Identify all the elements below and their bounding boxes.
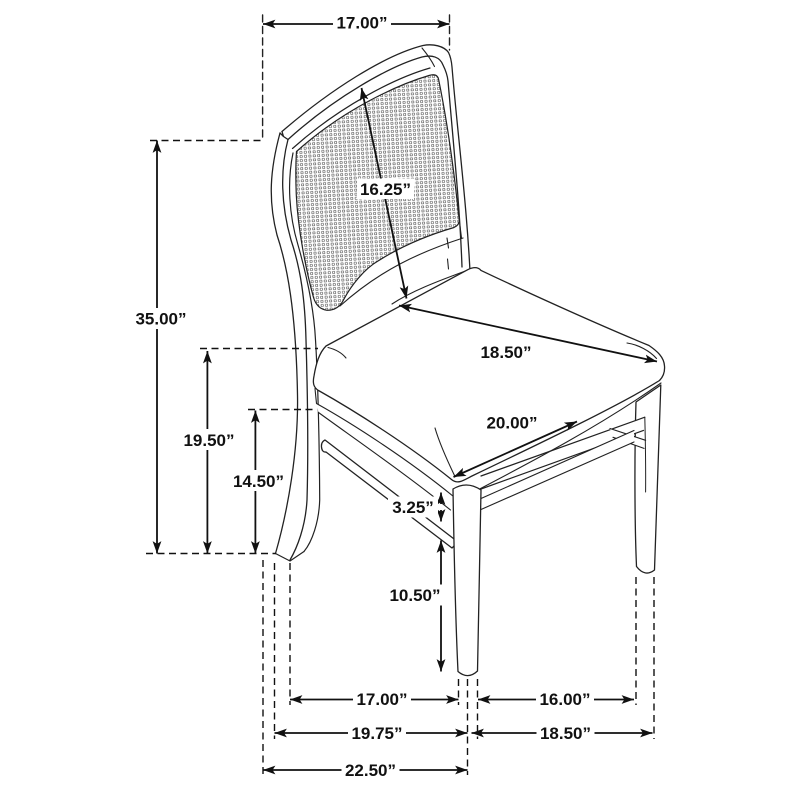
svg-text:18.50”: 18.50”	[540, 724, 591, 743]
svg-text:19.75”: 19.75”	[351, 724, 402, 743]
svg-text:19.50”: 19.50”	[183, 431, 234, 450]
svg-text:14.50”: 14.50”	[233, 472, 284, 491]
svg-text:22.50”: 22.50”	[345, 761, 396, 780]
svg-text:18.50”: 18.50”	[480, 343, 531, 362]
svg-text:17.00”: 17.00”	[356, 690, 407, 709]
svg-text:3.25”: 3.25”	[392, 498, 434, 517]
svg-text:16.25”: 16.25”	[360, 180, 411, 199]
svg-text:10.50”: 10.50”	[389, 586, 440, 605]
svg-text:16.00”: 16.00”	[539, 690, 590, 709]
svg-text:35.00”: 35.00”	[135, 310, 186, 329]
svg-text:20.00”: 20.00”	[486, 414, 537, 433]
svg-text:17.00”: 17.00”	[336, 14, 387, 33]
